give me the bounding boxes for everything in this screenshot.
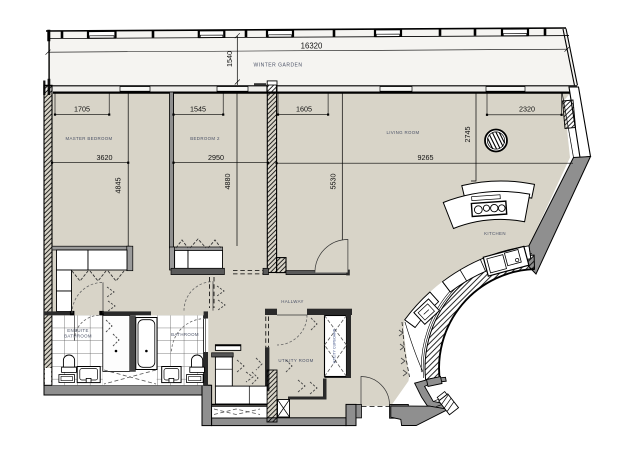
svg-text:3620: 3620 xyxy=(97,153,113,162)
svg-text:UTILITY ROOM: UTILITY ROOM xyxy=(278,358,313,363)
svg-text:MASTER BEDROOM: MASTER BEDROOM xyxy=(65,136,112,141)
svg-text:KITCHEN: KITCHEN xyxy=(484,231,506,236)
svg-text:BATHROOM: BATHROOM xyxy=(171,332,199,337)
svg-text:9265: 9265 xyxy=(418,153,434,162)
svg-text:ENSUITE: ENSUITE xyxy=(67,328,88,333)
svg-text:2320: 2320 xyxy=(519,105,535,114)
svg-text:4880: 4880 xyxy=(223,174,232,190)
svg-text:2745: 2745 xyxy=(463,127,472,143)
svg-text:BEDROOM 2: BEDROOM 2 xyxy=(190,136,220,141)
svg-text:1705: 1705 xyxy=(74,105,90,114)
svg-text:16320: 16320 xyxy=(301,42,323,51)
svg-text:2950: 2950 xyxy=(208,153,224,162)
svg-text:1540: 1540 xyxy=(225,51,234,67)
svg-text:1605: 1605 xyxy=(296,105,312,114)
svg-text:UTILITY CUPBOARD: UTILITY CUPBOARD xyxy=(333,328,337,363)
svg-text:4845: 4845 xyxy=(114,178,123,194)
svg-text:BATHROOM: BATHROOM xyxy=(64,334,92,339)
svg-text:1545: 1545 xyxy=(190,105,206,114)
svg-text:WINTER GARDEN: WINTER GARDEN xyxy=(254,63,303,69)
svg-text:5530: 5530 xyxy=(329,174,338,190)
svg-text:LIVING ROOM: LIVING ROOM xyxy=(386,130,419,135)
svg-text:HALLWAY: HALLWAY xyxy=(281,299,304,304)
